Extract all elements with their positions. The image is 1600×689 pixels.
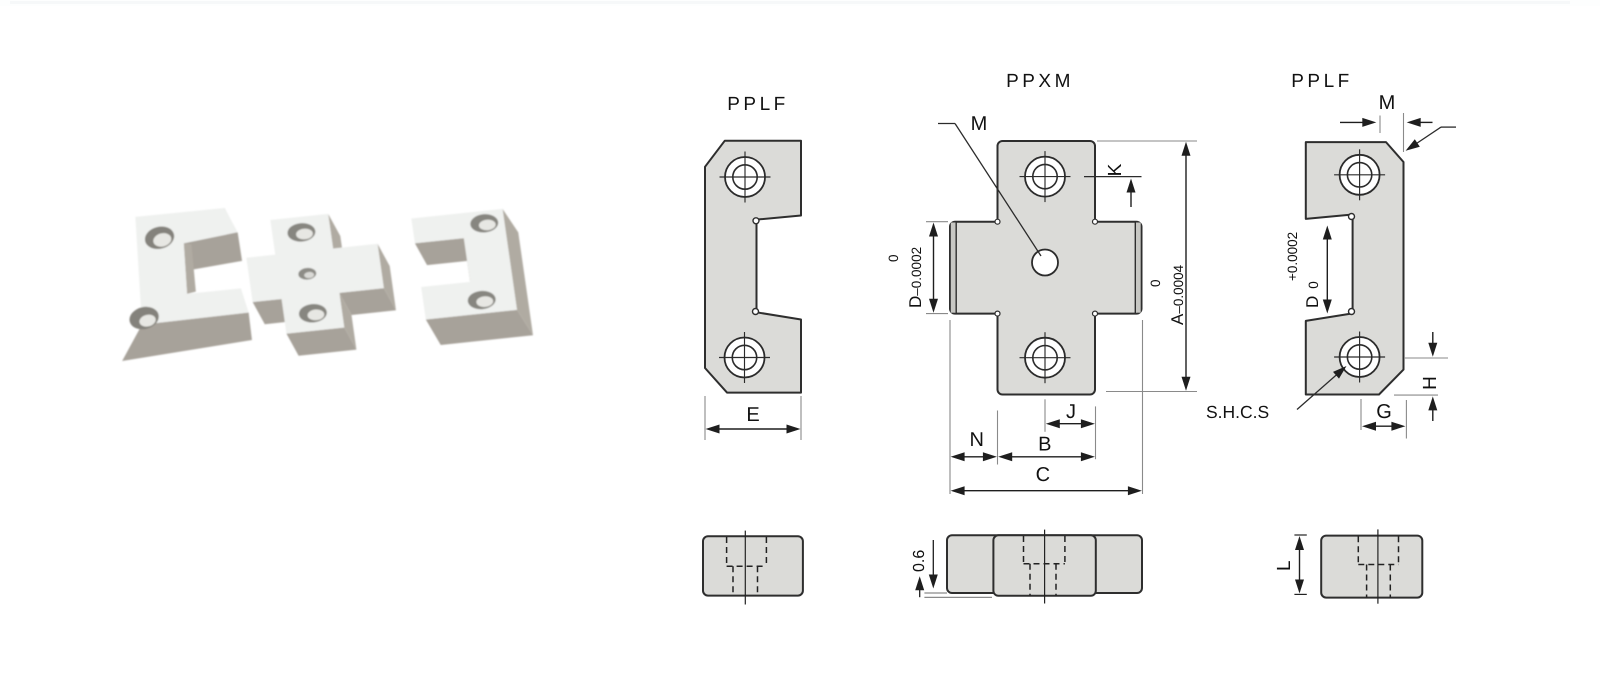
svg-text:N: N — [969, 429, 983, 451]
svg-text:L: L — [1274, 560, 1295, 571]
svg-text:B: B — [1038, 434, 1051, 456]
svg-text:C: C — [1036, 464, 1050, 486]
svg-text:G: G — [1376, 401, 1392, 423]
svg-text:S.H.C.S: S.H.C.S — [1206, 402, 1269, 422]
svg-text:+0.0002: +0.0002 — [1285, 232, 1300, 281]
svg-text:PPXM: PPXM — [1006, 71, 1074, 92]
svg-text:PPLF: PPLF — [1291, 71, 1353, 92]
svg-text:K: K — [1105, 163, 1126, 176]
svg-text:H: H — [1420, 376, 1441, 390]
svg-text:E: E — [746, 404, 759, 426]
svg-text:0.6: 0.6 — [911, 550, 928, 572]
svg-text:0: 0 — [1148, 279, 1163, 287]
svg-text:A–0.0004: A–0.0004 — [1168, 264, 1187, 325]
svg-text:0: 0 — [886, 254, 901, 262]
svg-text:PPLF: PPLF — [727, 94, 789, 115]
svg-text:M: M — [971, 113, 988, 135]
svg-text:J: J — [1066, 401, 1076, 423]
svg-text:D–0.0002: D–0.0002 — [906, 247, 925, 308]
svg-text:M: M — [1379, 92, 1396, 114]
